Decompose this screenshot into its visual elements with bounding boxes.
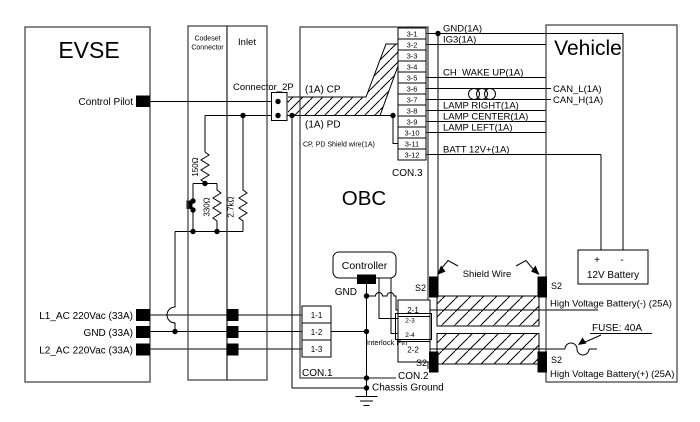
inlet-l2-pin (227, 344, 239, 356)
cp-pd-shield-label: CP, PD Shield wire(1A) (303, 142, 375, 149)
vehicle-title: Vehicle (554, 37, 622, 60)
signal-can-h-label: CAN_H(1A) (553, 95, 603, 106)
gnd-terminal (136, 326, 150, 338)
s2-label-obc-bottom: S2 (416, 358, 427, 368)
shield-wire-callout: Shield Wire (437, 261, 540, 281)
signal-can-l-label: CAN_L(1A) (553, 84, 602, 95)
inlet-gnd-pin (227, 326, 239, 338)
con2-pin-2-2: 2-2 (407, 346, 419, 355)
wire-batt-12v (426, 155, 601, 251)
chassis-ground-label: Chassis Ground (372, 383, 444, 394)
evse-title: EVSE (58, 37, 119, 63)
con3-connector: 3-1 3-2 3-3 3-4 3-5 3-6 3-7 3-8 3-9 3-10… (398, 28, 426, 160)
con1-pin-1-3: 1-3 (311, 345, 323, 354)
wire-interlock-1 (379, 278, 398, 319)
control-pilot-terminal (136, 96, 150, 108)
con3-pin-3-7: 3-7 (407, 95, 418, 104)
pd-wire-label: (1A) PD (305, 120, 341, 131)
battery-plus-label: + (594, 255, 600, 266)
con3-pin-3-11: 3-11 (405, 139, 419, 148)
interlock-pin-label: Interlock Pin (366, 338, 407, 347)
con1-pin-1-2: 1-2 (311, 328, 323, 337)
battery-12v-label: 12V Battery (587, 270, 639, 281)
l1-label: L1_AC 220Vac (33A) (39, 311, 133, 322)
con3-pin-3-9: 3-9 (407, 117, 418, 126)
inlet-l1-pin (227, 309, 239, 321)
cp-pd-shield-band (288, 44, 398, 116)
s2-shield-block-vehicle-bottom (538, 352, 548, 373)
con2-pin-2-3: 2-3 (405, 318, 415, 325)
s2-shield-block-obc-bottom (429, 352, 439, 373)
con3-pin-3-6: 3-6 (407, 84, 418, 93)
signal-ig3-label: IG3(1A) (443, 35, 476, 46)
s2-shield-block-vehicle-top (538, 277, 548, 298)
cp-wire-label: (1A) CP (305, 85, 341, 96)
schematic-canvas: 3-1 3-2 3-3 3-4 3-5 3-6 3-7 3-8 3-9 3-10… (0, 0, 700, 417)
controller-gnd-label: GND (335, 287, 357, 298)
con3-pin-3-1: 3-1 (407, 29, 418, 38)
s2-label-obc-top: S2 (415, 283, 426, 293)
fuse-arrow-icon (578, 338, 587, 346)
con1-pin-1-1: 1-1 (311, 311, 323, 320)
shield-wire-label: Shield Wire (463, 269, 512, 280)
con1-connector: 1-1 1-2 1-3 (302, 306, 331, 357)
wiring-diagram: 3-1 3-2 3-3 3-4 3-5 3-6 3-7 3-8 3-9 3-10… (0, 0, 700, 417)
twisted-pair-icon (469, 89, 496, 100)
obc-title: OBC (342, 187, 387, 210)
signal-ch-wake-label: CH_WAKE UP(1A) (443, 68, 523, 79)
wire-interlock-2 (391, 278, 398, 334)
hv-negative-label: High Voltage Battery(-) (25A) (550, 299, 672, 310)
hv-shield-bands (437, 296, 539, 364)
control-pilot-label: Control Pilot (79, 97, 134, 108)
gnd-label: GND (33A) (84, 328, 133, 339)
controller-terminal (357, 275, 376, 285)
l2-label: L2_AC 220Vac (33A) (39, 346, 133, 357)
resistor-2k7-label: 2.7kΩ (227, 196, 236, 217)
l2-terminal (136, 344, 150, 356)
wire-shield-to-pin311 (393, 116, 398, 144)
ground-icon (356, 397, 378, 406)
wire-gnd-to-con2 (367, 293, 399, 310)
con3-label: CON.3 (392, 168, 423, 179)
con2-connector: 2-1 2-3 2-4 2-2 (396, 300, 432, 362)
signal-lamp-right-label: LAMP RIGHT(1A) (443, 101, 519, 112)
terminal-squares (136, 96, 547, 373)
arrow-right-icon (531, 266, 540, 276)
signal-lamp-left-label: LAMP LEFT(1A) (443, 123, 513, 134)
codeset-label-line2: Connector (191, 45, 224, 52)
resistor-330-ohm (213, 184, 221, 232)
con3-pin-3-2: 3-2 (407, 40, 418, 49)
s2-label-vehicle-bottom: S2 (551, 355, 562, 365)
fuse-callout: FUSE: 40A (578, 323, 652, 345)
con3-pin-3-12: 3-12 (404, 150, 419, 159)
inlet-title: Inlet (238, 37, 256, 48)
con3-pin-3-8: 3-8 (407, 106, 418, 115)
wire-res-to-gnd (167, 232, 175, 332)
con3-pin-3-10: 3-10 (404, 128, 419, 137)
signal-batt-label: BATT 12V+(1A) (443, 145, 509, 156)
con2-label: CON.2 (398, 371, 429, 382)
l1-terminal (136, 309, 150, 321)
con2-pin-2-1: 2-1 (407, 306, 419, 315)
signal-gnd-label: GND(1A) (443, 24, 482, 35)
battery-minus-label: - (620, 255, 623, 266)
signal-lamp-center-label: LAMP CENTER(1A) (443, 112, 528, 123)
controller-label: Controller (342, 260, 388, 272)
resistor-150-ohm (201, 152, 209, 183)
codeset-label-line1: Codeset (194, 36, 220, 43)
resistor-330-label: 330Ω (203, 197, 212, 216)
resistor-150-label: 150Ω (191, 157, 200, 176)
resistor-2k7-ohm (239, 116, 247, 232)
con3-pin-3-3: 3-3 (407, 51, 418, 60)
hv-positive-label: High Voltage Battery(+) (25A) (550, 369, 674, 380)
fuse-label: FUSE: 40A (592, 323, 642, 334)
con1-label: CON.1 (302, 368, 333, 379)
con3-pin-3-5: 3-5 (407, 73, 418, 82)
con3-pin-3-4: 3-4 (407, 62, 418, 71)
connector-2p-label: Connector_2P (233, 82, 294, 93)
s2-shield-block-obc-top (429, 277, 439, 298)
fuse-icon (565, 343, 589, 355)
s2-label-vehicle-top: S2 (551, 281, 562, 291)
